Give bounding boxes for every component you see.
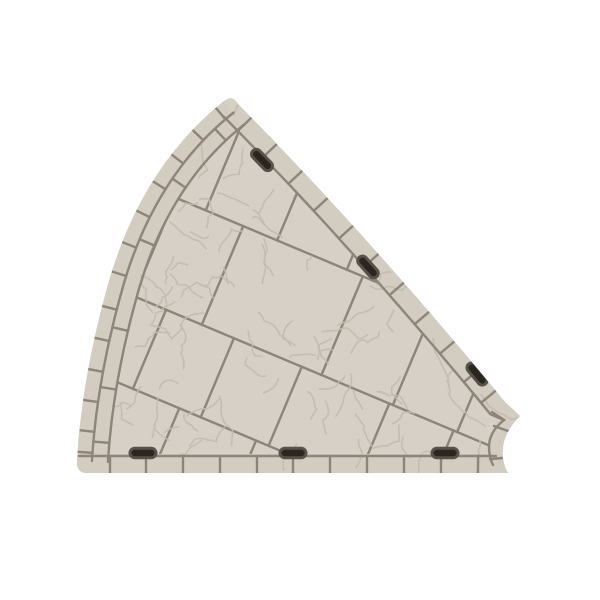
- tile-silhouette: [77, 98, 520, 473]
- vent-slot-pill: [280, 448, 306, 458]
- left-band1-divider: [79, 430, 94, 432]
- scoop-band-divider: [490, 458, 503, 459]
- vent-slot: [130, 448, 156, 458]
- vent-slot: [280, 448, 306, 458]
- stone-floor-wedge-sprite: [0, 0, 600, 600]
- slab-joint-line: [416, 215, 451, 299]
- slab-joint-line: [79, 475, 112, 553]
- slab-joint-line: [343, 80, 381, 169]
- slab-joint-line: [229, 538, 262, 600]
- slab-joint-line: [279, 465, 313, 546]
- vent-slot-pill: [432, 448, 458, 458]
- slab-joint-line: [296, 566, 329, 600]
- left-band1-divider: [78, 452, 93, 453]
- vent-slot-pill: [130, 448, 156, 458]
- slab-joint-line: [345, 492, 379, 573]
- slab-joint-line: [270, 49, 308, 138]
- slab-joint-line: [481, 242, 516, 326]
- left-band2-divider: [93, 442, 109, 443]
- scoop-border-cover: [503, 416, 520, 473]
- asset-canvas: [0, 0, 600, 600]
- slab-row-line: [55, 451, 548, 600]
- slab-joint-line: [154, 506, 187, 584]
- vent-slot: [432, 448, 458, 458]
